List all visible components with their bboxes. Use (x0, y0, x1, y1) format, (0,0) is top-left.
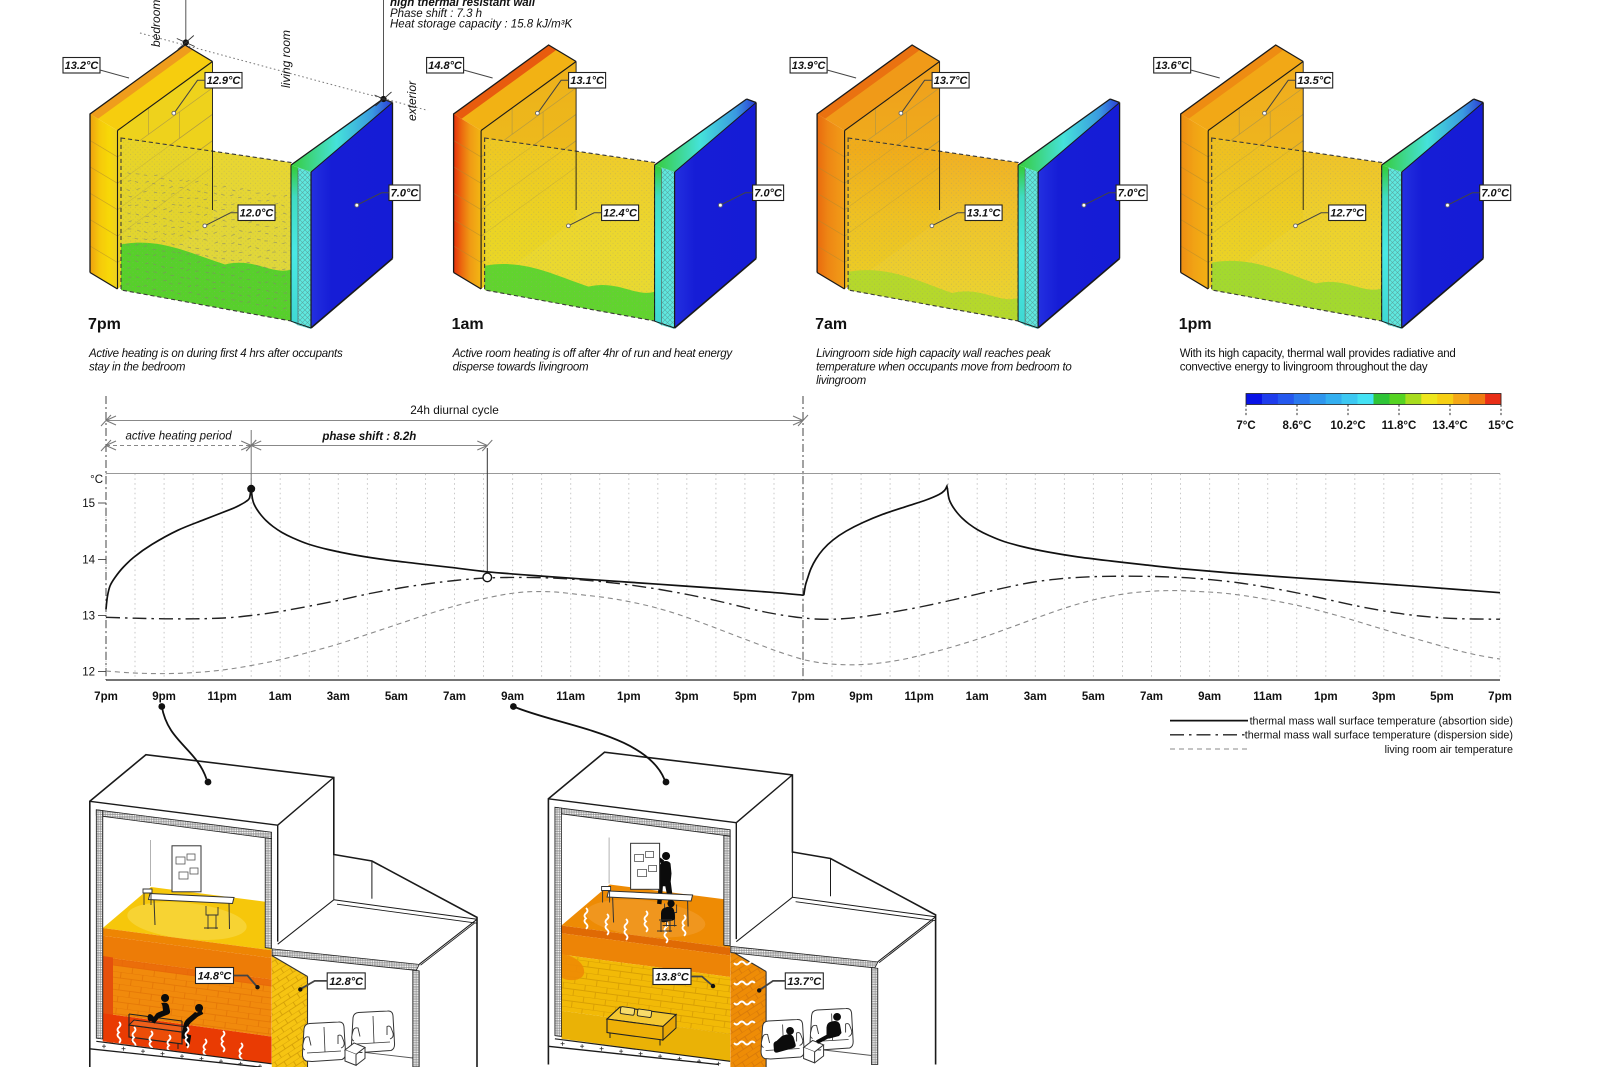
svg-text:stay in the bedroom: stay in the bedroom (89, 361, 186, 373)
svg-text:9am: 9am (1198, 691, 1221, 703)
svg-text:5pm: 5pm (1430, 691, 1454, 703)
svg-text:1pm: 1pm (1314, 691, 1338, 703)
svg-text:11.8°C: 11.8°C (1382, 420, 1417, 432)
svg-text:livingroom: livingroom (816, 375, 867, 387)
svg-text:7pm: 7pm (88, 316, 121, 333)
svg-text:7pm: 7pm (791, 691, 815, 703)
svg-text:13.6°C: 13.6°C (1155, 60, 1190, 72)
svg-text:14.8°C: 14.8°C (428, 60, 463, 72)
svg-text:5am: 5am (1082, 691, 1105, 703)
svg-text:7pm: 7pm (94, 691, 118, 703)
svg-text:bedroom: bedroom (149, 0, 163, 47)
svg-text:13.7°C: 13.7°C (787, 976, 822, 988)
svg-text:1am: 1am (269, 691, 292, 703)
svg-text:thermal mass wall surface temp: thermal mass wall surface temperature (d… (1245, 730, 1513, 742)
svg-text:13.1°C: 13.1°C (570, 75, 605, 87)
svg-text:Active room heating is off aft: Active room heating is off after 4hr of … (452, 348, 734, 360)
svg-text:5am: 5am (385, 691, 408, 703)
svg-text:Livingroom side high capacity: Livingroom side high capacity wall reach… (816, 348, 1052, 360)
svg-text:1pm: 1pm (1179, 316, 1212, 333)
svg-text:7am: 7am (1140, 691, 1163, 703)
svg-text:13.8°C: 13.8°C (655, 972, 690, 984)
svg-text:3pm: 3pm (675, 691, 699, 703)
svg-text:living room: living room (279, 30, 293, 88)
svg-text:12.9°C: 12.9°C (207, 75, 242, 87)
svg-text:7°C: 7°C (1236, 420, 1255, 432)
svg-text:1am: 1am (452, 316, 484, 333)
svg-text:1am: 1am (966, 691, 989, 703)
svg-text:12: 12 (82, 667, 95, 679)
svg-text:11am: 11am (1253, 691, 1282, 703)
svg-text:convective energy to livingroo: convective energy to livingroom througho… (1180, 361, 1428, 373)
svg-text:3am: 3am (327, 691, 350, 703)
svg-text:10.2°C: 10.2°C (1330, 420, 1365, 432)
svg-text:12.4°C: 12.4°C (603, 208, 638, 220)
svg-text:Active heating is on during fi: Active heating is on during first 4 hrs … (88, 348, 343, 360)
svg-text:11am: 11am (556, 691, 585, 703)
svg-text:12.8°C: 12.8°C (329, 976, 364, 988)
svg-text:7.0°C: 7.0°C (1118, 188, 1147, 200)
svg-text:13.7°C: 13.7°C (934, 75, 969, 87)
svg-text:phase shift : 8.2h: phase shift : 8.2h (321, 431, 416, 443)
svg-text:7am: 7am (815, 316, 847, 333)
svg-text:3pm: 3pm (1372, 691, 1396, 703)
svg-text:12.7°C: 12.7°C (1330, 208, 1365, 220)
svg-text:24h diurnal cycle: 24h diurnal cycle (410, 403, 499, 417)
svg-text:7pm: 7pm (1488, 691, 1512, 703)
svg-text:5pm: 5pm (733, 691, 757, 703)
svg-text:9pm: 9pm (849, 691, 873, 703)
svg-text:°C: °C (90, 474, 103, 486)
svg-text:13: 13 (82, 611, 95, 623)
svg-text:exterior: exterior (405, 80, 419, 121)
svg-text:8.6°C: 8.6°C (1283, 420, 1312, 432)
svg-text:14.8°C: 14.8°C (198, 971, 233, 983)
svg-text:15: 15 (82, 498, 95, 510)
svg-text:7am: 7am (443, 691, 466, 703)
svg-text:disperse towards livingroom: disperse towards livingroom (453, 361, 589, 373)
svg-text:11pm: 11pm (207, 691, 236, 703)
svg-text:7.0°C: 7.0°C (1481, 188, 1510, 200)
svg-text:13.2°C: 13.2°C (65, 60, 100, 72)
svg-text:temperature when occupants mov: temperature when occupants move from bed… (816, 361, 1072, 373)
svg-text:12.0°C: 12.0°C (240, 208, 275, 220)
svg-text:Heat storage capacity : 15.8: Heat storage capacity : 15.8 kJ/m³K (390, 19, 573, 31)
svg-text:living room air temperature: living room air temperature (1385, 744, 1513, 756)
svg-text:thermal mass wall surface temp: thermal mass wall surface temperature (a… (1250, 716, 1513, 728)
svg-text:11pm: 11pm (904, 691, 933, 703)
svg-text:7.0°C: 7.0°C (754, 188, 783, 200)
svg-text:15°C: 15°C (1488, 420, 1514, 432)
svg-text:9am: 9am (501, 691, 524, 703)
svg-text:With its high capacity, therma: With its high capacity, thermal wall pro… (1180, 348, 1456, 360)
svg-text:14: 14 (82, 555, 95, 567)
svg-text:13.9°C: 13.9°C (792, 60, 827, 72)
svg-text:3am: 3am (1024, 691, 1047, 703)
svg-text:9pm: 9pm (152, 691, 176, 703)
svg-text:1pm: 1pm (617, 691, 641, 703)
svg-text:13.4°C: 13.4°C (1432, 420, 1467, 432)
svg-text:7.0°C: 7.0°C (391, 188, 420, 200)
svg-text:13.5°C: 13.5°C (1297, 75, 1332, 87)
svg-text:13.1°C: 13.1°C (967, 208, 1002, 220)
svg-text:active heating period: active heating period (126, 431, 233, 443)
